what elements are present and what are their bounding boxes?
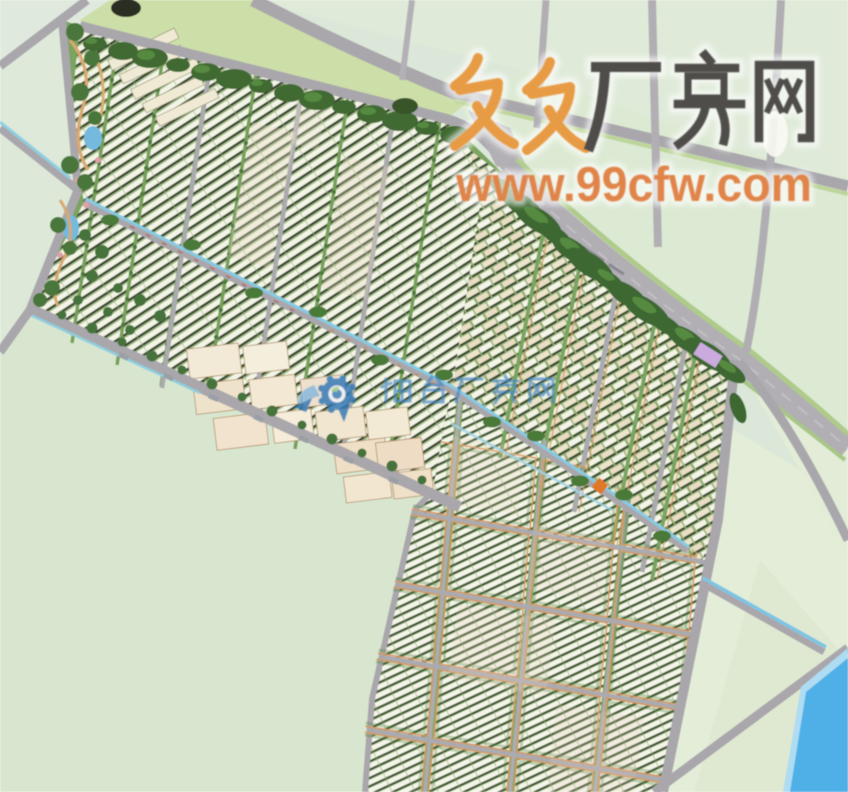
svg-text:www.99cfw.com: www.99cfw.com	[455, 158, 812, 212]
